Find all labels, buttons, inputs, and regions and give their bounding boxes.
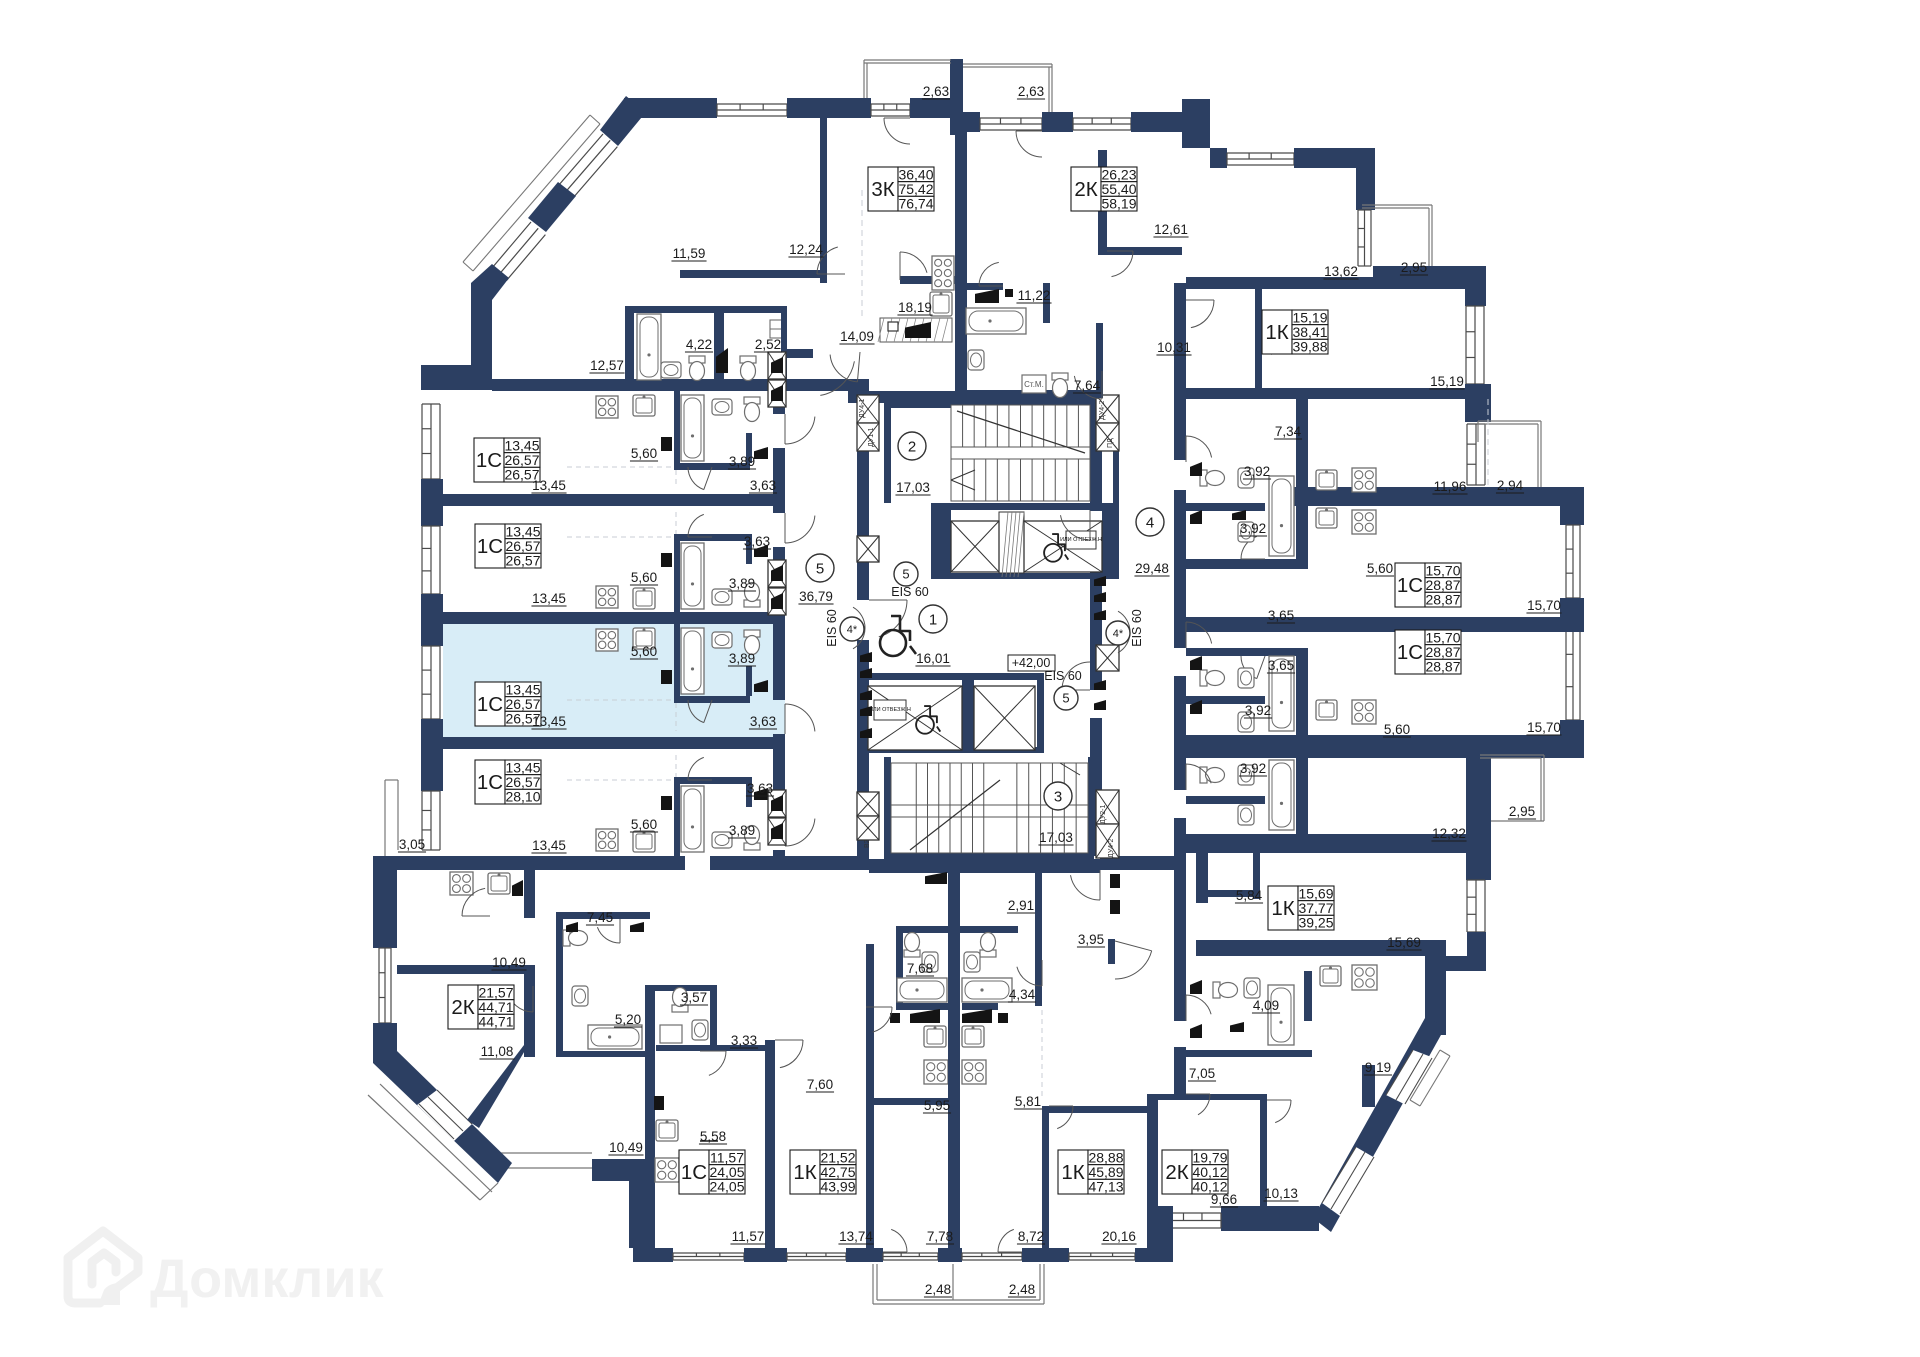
svg-text:26,57: 26,57: [505, 774, 540, 790]
svg-text:43,99: 43,99: [820, 1179, 855, 1195]
svg-text:Домклик: Домклик: [150, 1249, 385, 1309]
svg-text:55,40: 55,40: [1101, 181, 1136, 197]
svg-text:3,63: 3,63: [747, 781, 773, 796]
svg-text:1К: 1К: [793, 1161, 816, 1184]
svg-text:9,19: 9,19: [1365, 1060, 1391, 1075]
svg-text:1С: 1С: [681, 1161, 707, 1184]
svg-text:13,45: 13,45: [532, 591, 566, 606]
svg-text:1К: 1К: [1265, 321, 1288, 344]
svg-text:15,69: 15,69: [1298, 885, 1333, 901]
svg-text:1С: 1С: [476, 449, 502, 472]
svg-text:1С: 1С: [477, 771, 503, 794]
svg-text:1С: 1С: [1397, 641, 1423, 664]
svg-text:24,05: 24,05: [709, 1179, 744, 1195]
svg-text:28,87: 28,87: [1425, 577, 1460, 593]
svg-text:2,94: 2,94: [1497, 478, 1524, 493]
svg-text:2,63: 2,63: [1018, 84, 1044, 99]
svg-text:5,58: 5,58: [700, 1129, 726, 1144]
svg-text:2К: 2К: [1165, 1161, 1188, 1184]
svg-text:7,68: 7,68: [907, 961, 933, 976]
svg-text:39,88: 39,88: [1292, 339, 1327, 355]
svg-text:5,81: 5,81: [1015, 1094, 1041, 1109]
svg-text:2,52: 2,52: [755, 337, 781, 352]
svg-text:8,72: 8,72: [1018, 1229, 1044, 1244]
svg-text:2,63: 2,63: [923, 84, 949, 99]
svg-text:17,03: 17,03: [1039, 830, 1073, 845]
svg-text:5: 5: [1062, 691, 1069, 706]
svg-text:13,45: 13,45: [505, 759, 540, 775]
svg-text:19,79: 19,79: [1192, 1149, 1227, 1165]
svg-text:12,57: 12,57: [590, 358, 624, 373]
svg-text:13,45: 13,45: [532, 478, 566, 493]
svg-text:5,20: 5,20: [615, 1012, 641, 1027]
svg-text:45,89: 45,89: [1088, 1164, 1123, 1180]
svg-text:11,08: 11,08: [481, 1044, 514, 1059]
svg-text:1С: 1С: [1397, 574, 1423, 597]
svg-text:ДУ4-1: ДУ4-1: [859, 399, 866, 418]
svg-text:14,09: 14,09: [840, 329, 874, 344]
svg-text:2К: 2К: [1074, 178, 1097, 201]
svg-text:3,33: 3,33: [731, 1033, 757, 1048]
svg-text:7,05: 7,05: [1189, 1066, 1215, 1081]
svg-text:15,19: 15,19: [1430, 374, 1464, 389]
svg-text:15,19: 15,19: [1292, 309, 1327, 325]
svg-text:9,66: 9,66: [1211, 1192, 1237, 1207]
svg-text:26,23: 26,23: [1101, 166, 1136, 182]
svg-text:28,87: 28,87: [1425, 644, 1460, 660]
svg-text:15,70: 15,70: [1527, 598, 1561, 613]
svg-text:3,65: 3,65: [1268, 658, 1294, 673]
svg-text:7,45: 7,45: [587, 910, 613, 925]
svg-text:12,32: 12,32: [1432, 826, 1466, 841]
svg-text:42,75: 42,75: [820, 1164, 855, 1180]
svg-text:2,48: 2,48: [1009, 1282, 1035, 1297]
svg-text:40,12: 40,12: [1192, 1164, 1227, 1180]
svg-text:17,03: 17,03: [896, 480, 930, 495]
svg-text:4,09: 4,09: [1253, 998, 1279, 1013]
svg-text:ПД: ПД: [1107, 438, 1114, 448]
svg-text:3,89: 3,89: [729, 651, 755, 666]
svg-text:21,57: 21,57: [478, 984, 513, 1000]
svg-text:10,49: 10,49: [492, 955, 526, 970]
svg-text:28,88: 28,88: [1088, 1149, 1123, 1165]
svg-text:2,95: 2,95: [1509, 804, 1535, 819]
svg-text:7,34: 7,34: [1275, 424, 1302, 439]
svg-text:4,22: 4,22: [686, 337, 712, 352]
svg-text:3,89: 3,89: [729, 454, 755, 469]
svg-text:11,96: 11,96: [1434, 479, 1467, 494]
svg-text:3,63: 3,63: [744, 534, 770, 549]
svg-text:13,62: 13,62: [1324, 264, 1358, 279]
svg-text:1: 1: [929, 611, 937, 628]
svg-text:3,95: 3,95: [1078, 932, 1104, 947]
svg-text:29,48: 29,48: [1135, 561, 1169, 576]
svg-text:28,10: 28,10: [505, 789, 540, 805]
svg-text:20,16: 20,16: [1102, 1229, 1136, 1244]
svg-text:3: 3: [1054, 788, 1062, 805]
svg-text:В2: В2: [864, 839, 871, 848]
svg-text:5,95: 5,95: [924, 1098, 950, 1113]
svg-text:4*: 4*: [1113, 628, 1124, 640]
svg-text:2: 2: [908, 438, 916, 455]
svg-text:ДУ2-1: ДУ2-1: [1100, 805, 1107, 824]
svg-text:3,92: 3,92: [1244, 464, 1270, 479]
svg-text:12,61: 12,61: [1154, 222, 1188, 237]
svg-text:4: 4: [1146, 514, 1154, 531]
svg-text:7,64: 7,64: [1074, 378, 1101, 393]
svg-text:EIS 60: EIS 60: [891, 585, 929, 599]
svg-text:1С: 1С: [477, 693, 503, 716]
svg-text:10,49: 10,49: [609, 1140, 643, 1155]
svg-text:13,45: 13,45: [504, 437, 539, 453]
svg-text:ДУ1-1: ДУ1-1: [868, 428, 875, 447]
svg-text:13,45: 13,45: [505, 681, 540, 697]
svg-text:11,59: 11,59: [673, 246, 706, 261]
svg-text:75,42: 75,42: [898, 181, 933, 197]
svg-text:+42,00: +42,00: [1012, 656, 1051, 670]
svg-text:ИЛИ ОТВЕЗЖ.Н: ИЛИ ОТВЕЗЖ.Н: [869, 707, 911, 713]
svg-text:13,74: 13,74: [839, 1229, 873, 1244]
svg-text:38,41: 38,41: [1292, 324, 1327, 340]
svg-text:5,60: 5,60: [1384, 722, 1410, 737]
svg-text:26,57: 26,57: [505, 553, 540, 569]
svg-text:26,57: 26,57: [505, 696, 540, 712]
svg-text:76,74: 76,74: [898, 196, 933, 212]
svg-text:3,65: 3,65: [1268, 608, 1294, 623]
svg-text:26,57: 26,57: [504, 452, 539, 468]
svg-text:13,45: 13,45: [505, 523, 540, 539]
svg-text:ДУ4-2: ДУ4-2: [1099, 401, 1106, 420]
svg-text:1К: 1К: [1271, 897, 1294, 920]
svg-text:5,60: 5,60: [631, 817, 657, 832]
svg-text:24,05: 24,05: [709, 1164, 744, 1180]
svg-text:44,71: 44,71: [478, 1014, 513, 1030]
svg-text:1К: 1К: [1061, 1161, 1084, 1184]
svg-text:11,22: 11,22: [1018, 288, 1051, 303]
svg-text:12,24: 12,24: [789, 242, 823, 257]
svg-text:3,57: 3,57: [681, 990, 707, 1005]
svg-text:5,84: 5,84: [1236, 888, 1263, 903]
svg-text:3,89: 3,89: [729, 823, 755, 838]
svg-text:2,91: 2,91: [1008, 898, 1034, 913]
svg-text:15,69: 15,69: [1387, 935, 1421, 950]
svg-text:5: 5: [816, 560, 824, 577]
svg-text:4,34: 4,34: [1009, 987, 1036, 1002]
svg-text:37,77: 37,77: [1298, 900, 1333, 916]
svg-text:5: 5: [902, 567, 909, 582]
svg-text:36,40: 36,40: [898, 166, 933, 182]
svg-text:3,89: 3,89: [729, 576, 755, 591]
svg-text:3,63: 3,63: [750, 478, 776, 493]
svg-text:3,05: 3,05: [399, 837, 425, 852]
svg-text:13,45: 13,45: [532, 838, 566, 853]
svg-text:3,63: 3,63: [750, 714, 776, 729]
svg-text:28,87: 28,87: [1425, 659, 1460, 675]
svg-text:44,71: 44,71: [478, 999, 513, 1015]
svg-text:3К: 3К: [871, 178, 894, 201]
svg-text:28,87: 28,87: [1425, 592, 1460, 608]
svg-text:2,95: 2,95: [1401, 260, 1427, 275]
svg-text:26,57: 26,57: [505, 538, 540, 554]
svg-text:10,31: 10,31: [1157, 340, 1191, 355]
svg-text:EIS 60: EIS 60: [825, 609, 839, 647]
svg-text:11,57: 11,57: [732, 1229, 765, 1244]
svg-text:5,60: 5,60: [631, 644, 657, 659]
svg-text:3,92: 3,92: [1240, 521, 1266, 536]
svg-text:15,70: 15,70: [1425, 562, 1460, 578]
svg-text:18,19: 18,19: [898, 300, 932, 315]
svg-text:3,92: 3,92: [1245, 703, 1271, 718]
svg-text:5,60: 5,60: [631, 570, 657, 585]
svg-text:36,79: 36,79: [799, 589, 833, 604]
svg-text:16,01: 16,01: [916, 651, 950, 666]
svg-text:ИЛИ ОТВЕЗЖ.Н: ИЛИ ОТВЕЗЖ.Н: [1060, 537, 1102, 543]
svg-text:15,70: 15,70: [1527, 720, 1561, 735]
svg-text:EIS 60: EIS 60: [1130, 609, 1144, 647]
svg-text:Ст.М.: Ст.М.: [1024, 380, 1044, 389]
svg-text:13,45: 13,45: [532, 714, 566, 729]
svg-text:47,13: 47,13: [1088, 1179, 1123, 1195]
svg-text:39,25: 39,25: [1298, 915, 1333, 931]
svg-text:21,52: 21,52: [820, 1149, 855, 1165]
svg-text:2,48: 2,48: [925, 1282, 951, 1297]
svg-text:15,70: 15,70: [1425, 629, 1460, 645]
svg-text:ДУ4-2: ДУ4-2: [1108, 839, 1115, 858]
svg-text:7,60: 7,60: [807, 1077, 833, 1092]
svg-text:5,60: 5,60: [631, 446, 657, 461]
svg-text:1С: 1С: [477, 535, 503, 558]
svg-text:2К: 2К: [451, 996, 474, 1019]
svg-text:5,60: 5,60: [1367, 561, 1393, 576]
svg-text:4*: 4*: [847, 624, 858, 636]
svg-text:7,78: 7,78: [927, 1229, 953, 1244]
svg-text:10,13: 10,13: [1264, 1186, 1298, 1201]
svg-text:11,57: 11,57: [710, 1149, 744, 1165]
svg-text:58,19: 58,19: [1101, 196, 1136, 212]
svg-text:3,92: 3,92: [1240, 761, 1266, 776]
